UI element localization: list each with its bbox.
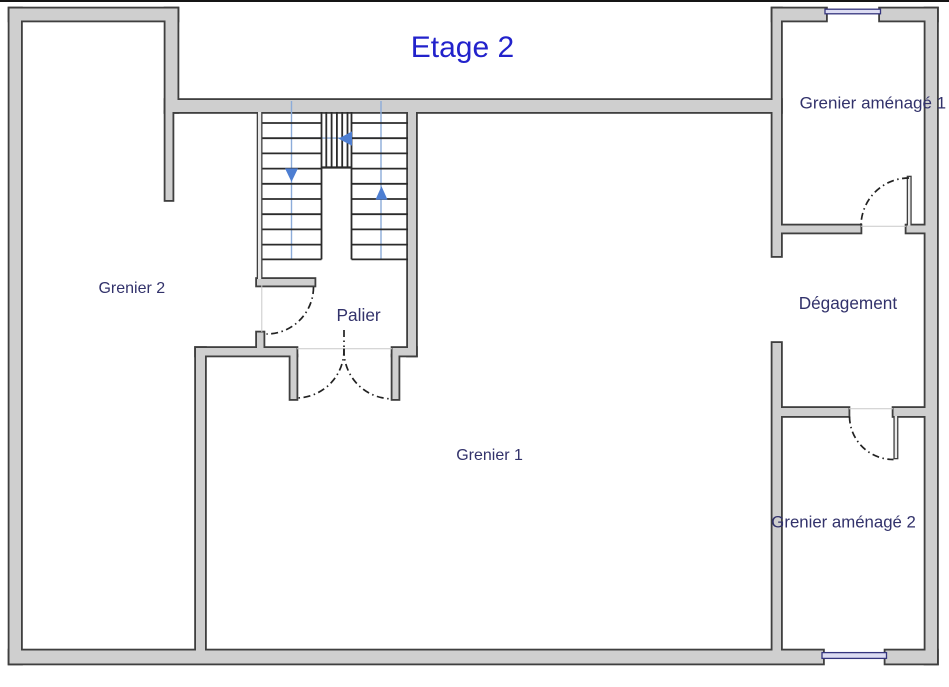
svg-text:Grenier 1: Grenier 1 xyxy=(456,447,523,464)
svg-text:Etage 2: Etage 2 xyxy=(411,31,514,64)
svg-text:Grenier 2: Grenier 2 xyxy=(98,280,165,297)
svg-text:Palier: Palier xyxy=(337,305,381,325)
svg-text:Dégagement: Dégagement xyxy=(799,293,898,313)
svg-text:Grenier aménagé 1: Grenier aménagé 1 xyxy=(800,94,946,113)
svg-text:Grenier aménagé 2: Grenier aménagé 2 xyxy=(771,513,916,532)
